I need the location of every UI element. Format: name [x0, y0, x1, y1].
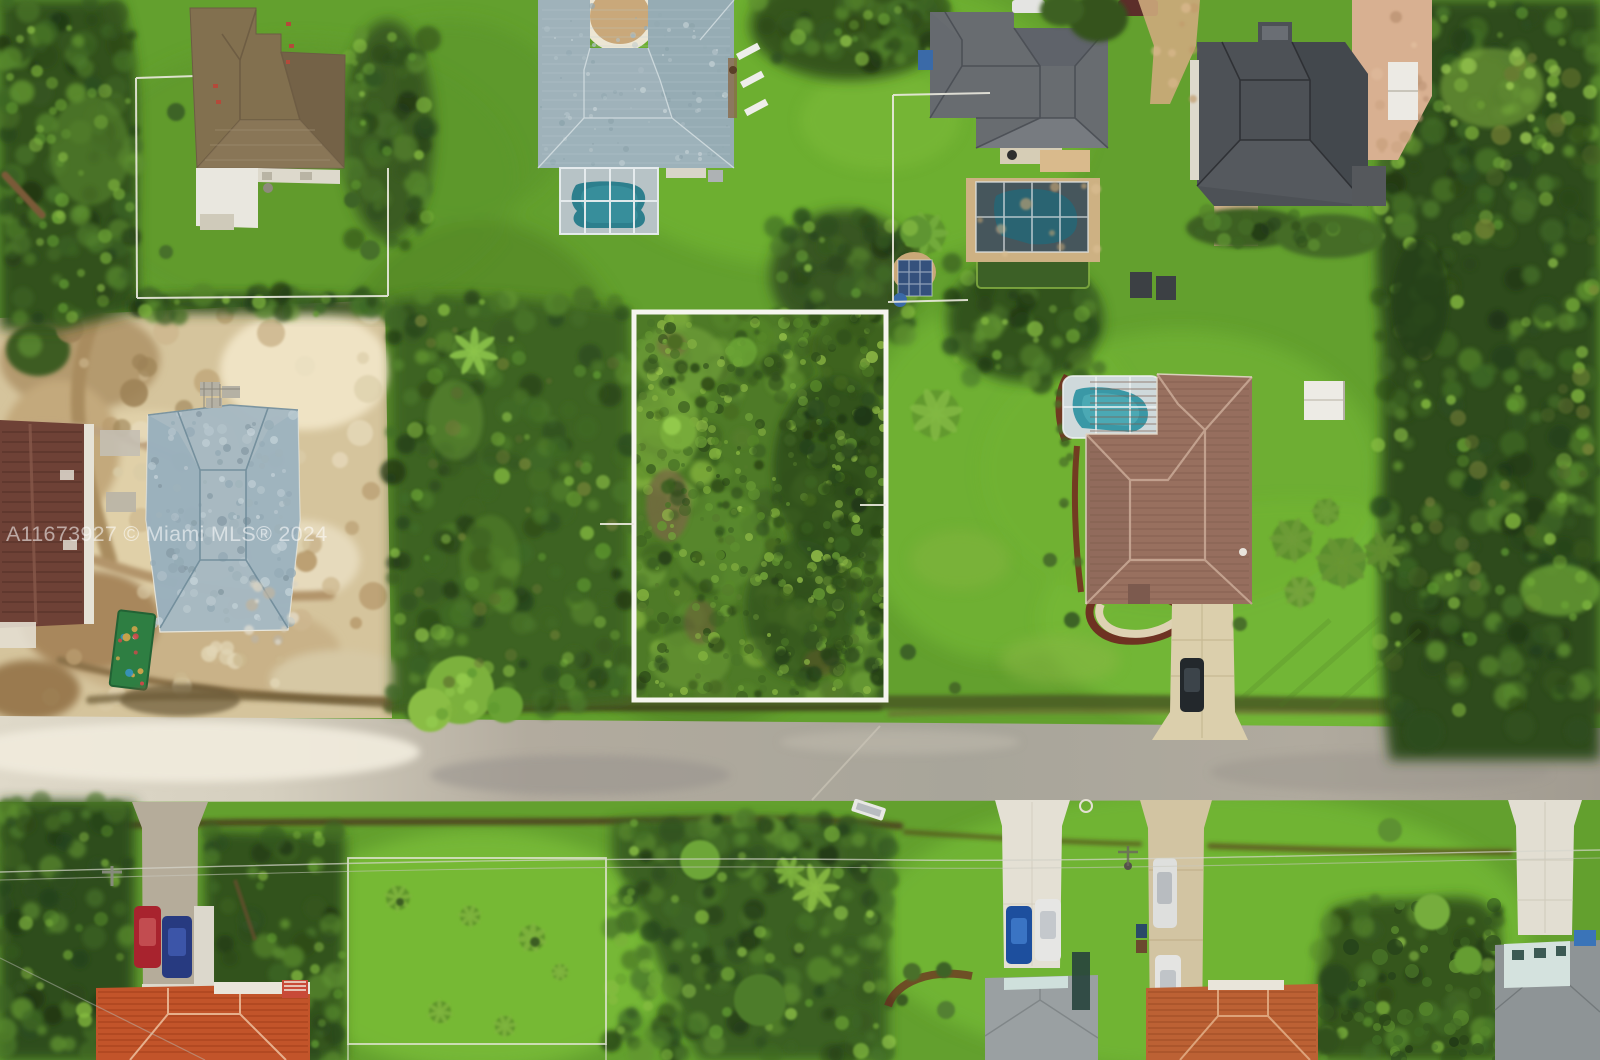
svg-text:A11673927 © Miami MLS® 2024: A11673927 © Miami MLS® 2024 [6, 522, 327, 546]
